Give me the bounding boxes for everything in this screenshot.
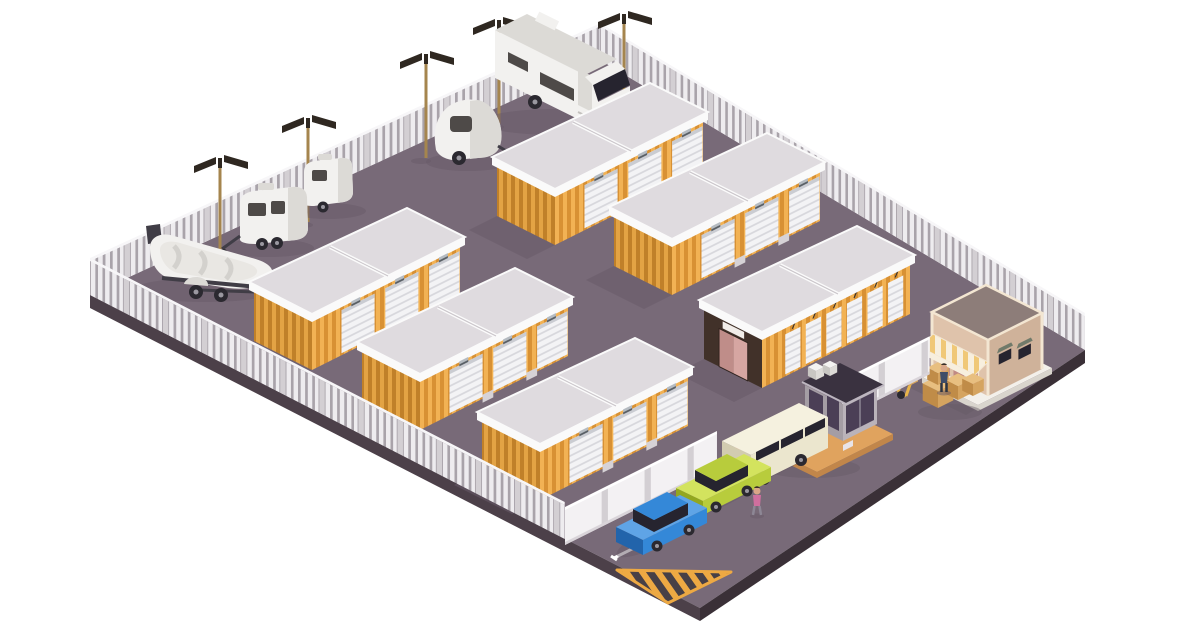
storage-facility-scene	[0, 0, 1200, 630]
storage-facility-illustration	[0, 0, 1200, 630]
